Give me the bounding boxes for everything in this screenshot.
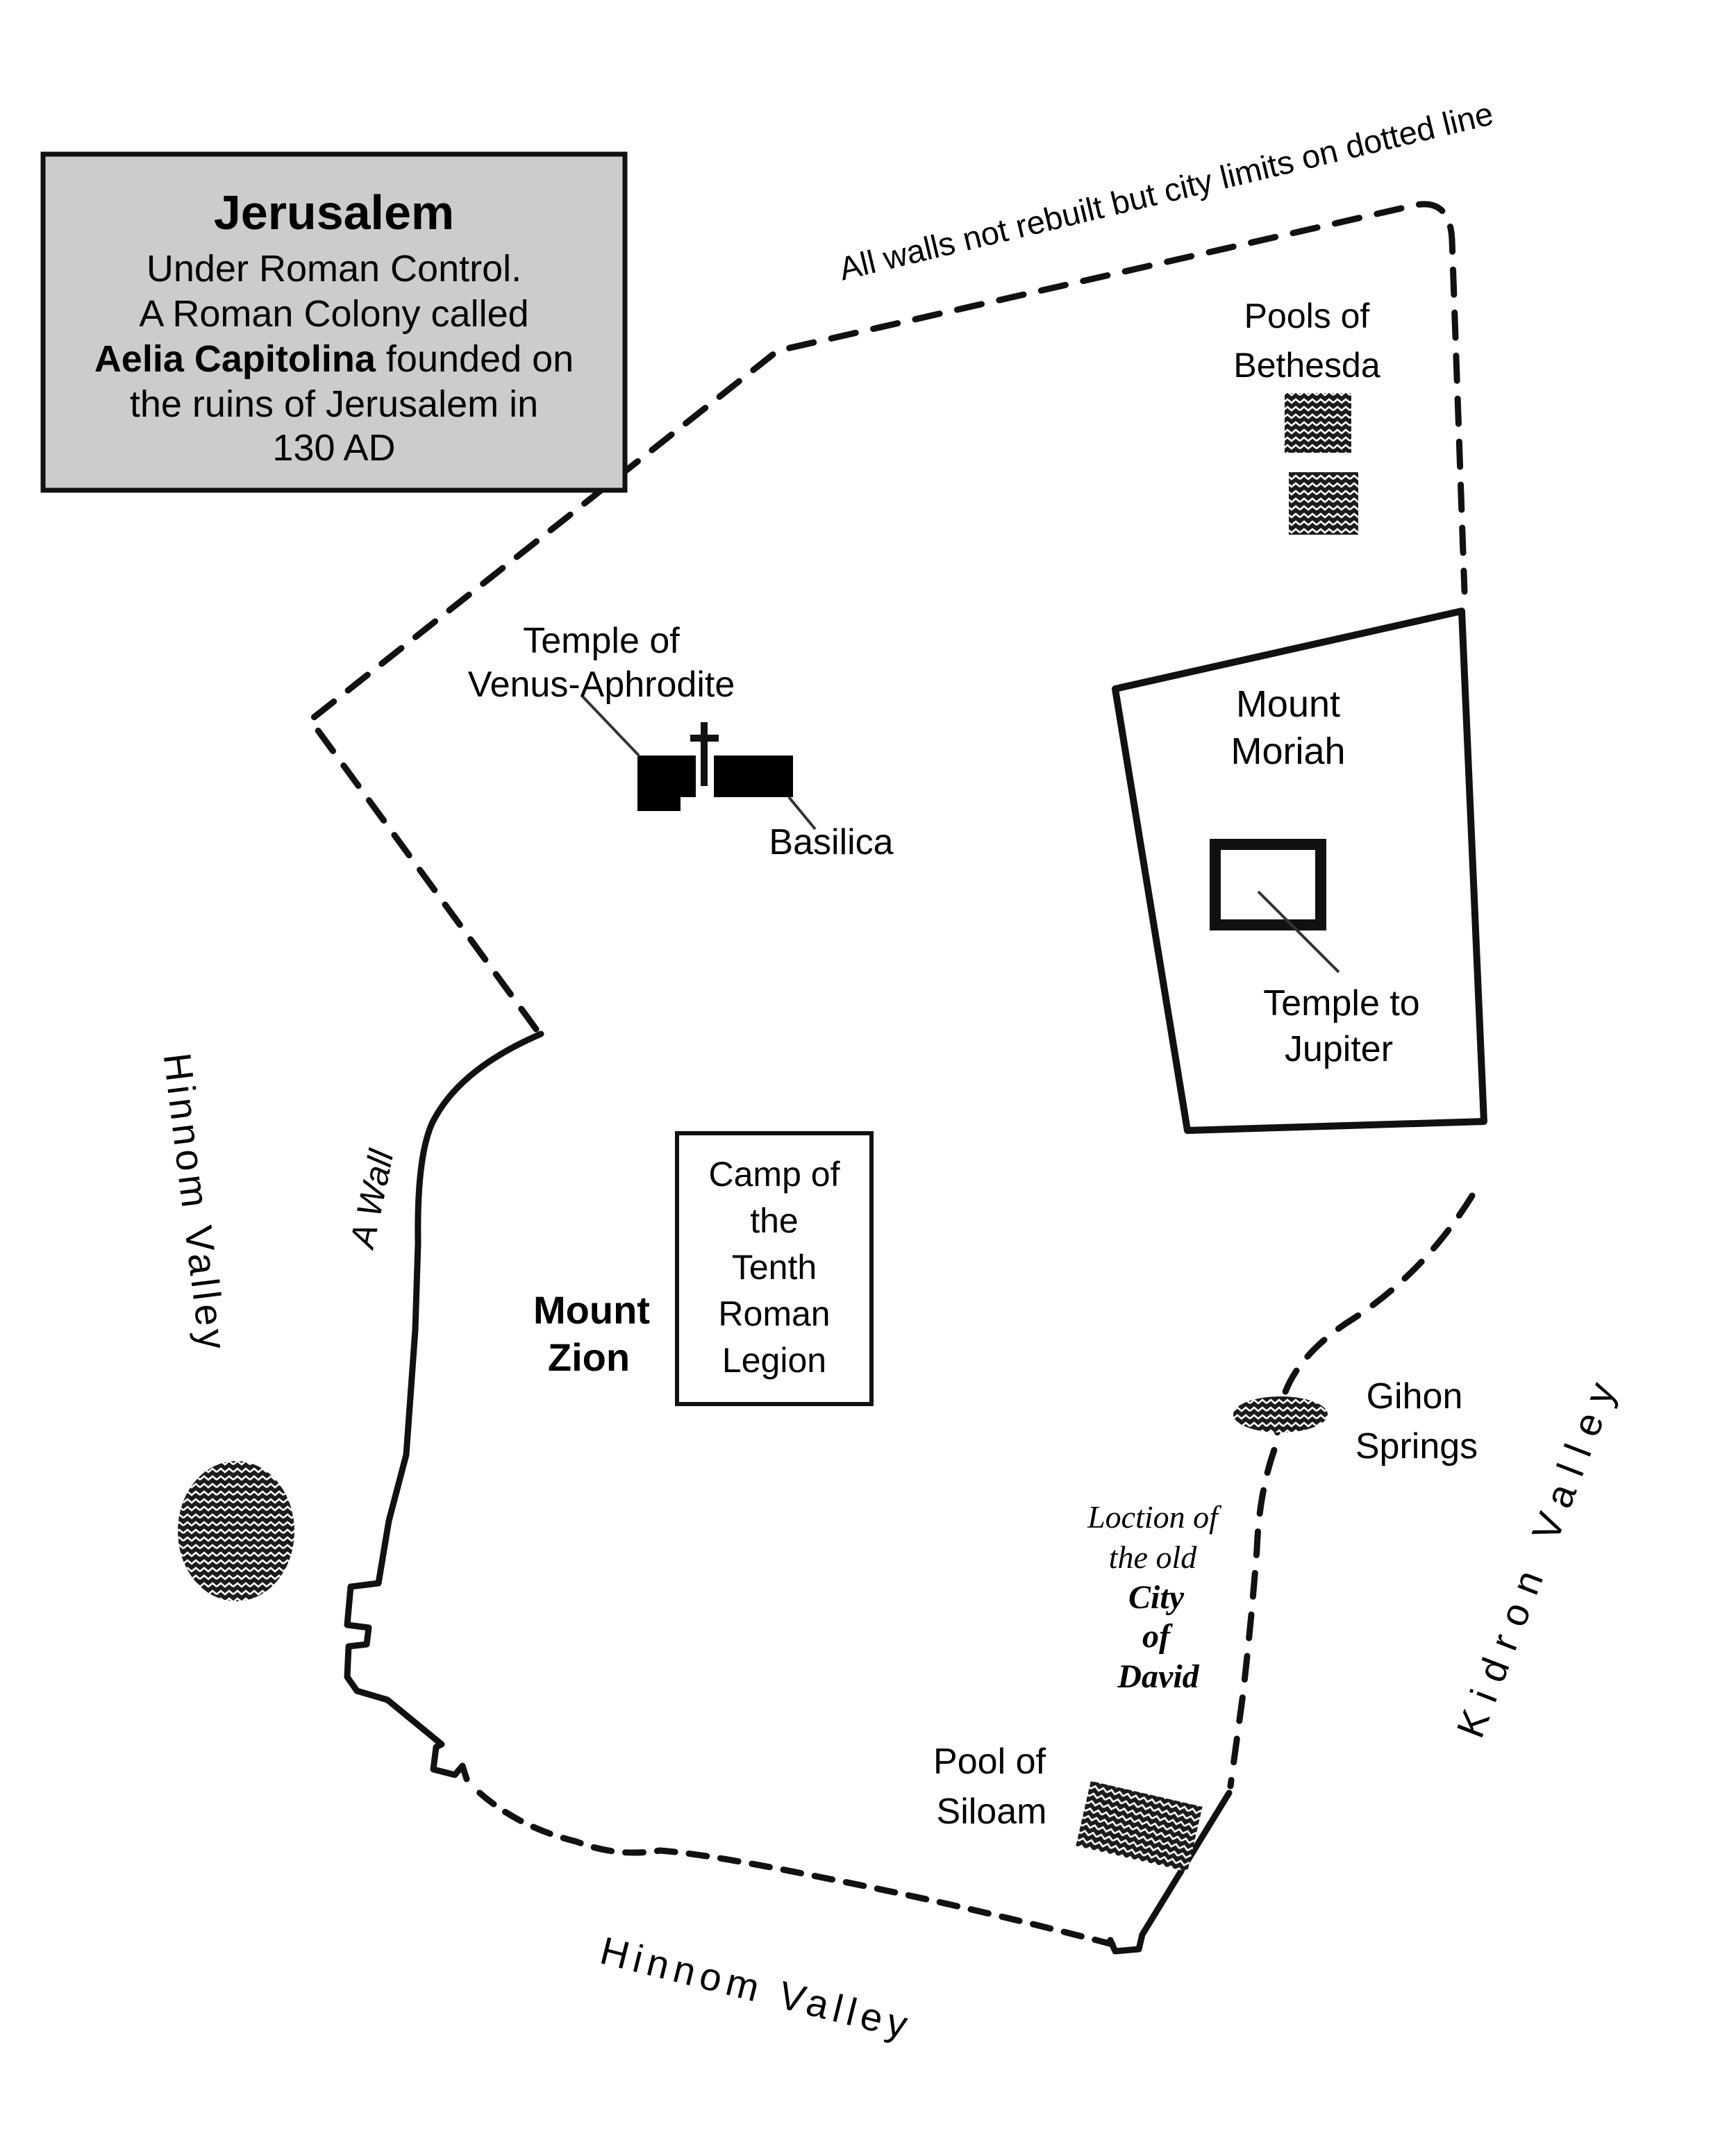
hinnom-pool-shape: [178, 1461, 294, 1601]
title-box-line4: the ruins of Jerusalem in: [130, 383, 538, 425]
label-city-of-david-1: Loction of: [1087, 1499, 1222, 1535]
title-box-line5: 130 AD: [272, 427, 395, 469]
label-camp-5: Legion: [722, 1341, 826, 1380]
label-camp-2: the: [750, 1201, 799, 1240]
label-pools-bethesda-1: Pools of: [1244, 297, 1370, 335]
label-mount-zion-1: Mount: [533, 1288, 650, 1332]
label-temple-jupiter-2: Jupiter: [1285, 1029, 1393, 1069]
jerusalem-map: Jerusalem Under Roman Control. A Roman C…: [0, 0, 1736, 2154]
label-basilica: Basilica: [769, 822, 893, 862]
label-camp-1: Camp of: [709, 1155, 840, 1194]
pool-bethesda-lower: [1289, 472, 1358, 535]
temple-venus-block-notch: [681, 797, 697, 812]
label-temple-venus-2: Venus-Aphrodite: [468, 665, 735, 705]
label-camp-3: Tenth: [732, 1248, 817, 1287]
pool-bethesda-upper: [1285, 393, 1351, 453]
label-city-of-david-5: David: [1117, 1658, 1199, 1695]
label-mount-zion-2: Zion: [548, 1335, 630, 1379]
label-pools-bethesda-2: Bethesda: [1233, 346, 1380, 385]
title-box-heading: Jerusalem: [214, 185, 454, 240]
title-box-line2: A Roman Colony called: [139, 293, 528, 335]
label-temple-jupiter-1: Temple to: [1263, 983, 1419, 1024]
gihon-spring-shape: [1233, 1396, 1328, 1433]
label-mount-moriah-1: Mount: [1236, 683, 1340, 725]
title-box-line3-bold: Aelia Capitolina: [94, 338, 376, 380]
label-city-of-david-2: the old: [1109, 1539, 1197, 1575]
label-city-of-david-4: of: [1142, 1618, 1173, 1655]
basilica-block: [714, 755, 793, 797]
label-mount-moriah-2: Moriah: [1230, 730, 1345, 772]
title-box-line1: Under Roman Control.: [147, 248, 521, 290]
title-box-line3: Aelia Capitolina founded on: [94, 338, 574, 380]
label-temple-venus-1: Temple of: [523, 621, 680, 661]
label-pool-siloam-1: Pool of: [933, 1742, 1046, 1782]
label-gihon-1: Gihon: [1367, 1376, 1463, 1417]
label-camp-4: Roman: [718, 1294, 830, 1333]
label-gihon-2: Springs: [1355, 1426, 1478, 1467]
label-city-of-david-3: City: [1128, 1579, 1185, 1616]
title-box-line3-rest: founded on: [376, 338, 574, 380]
label-pool-siloam-2: Siloam: [937, 1792, 1047, 1832]
